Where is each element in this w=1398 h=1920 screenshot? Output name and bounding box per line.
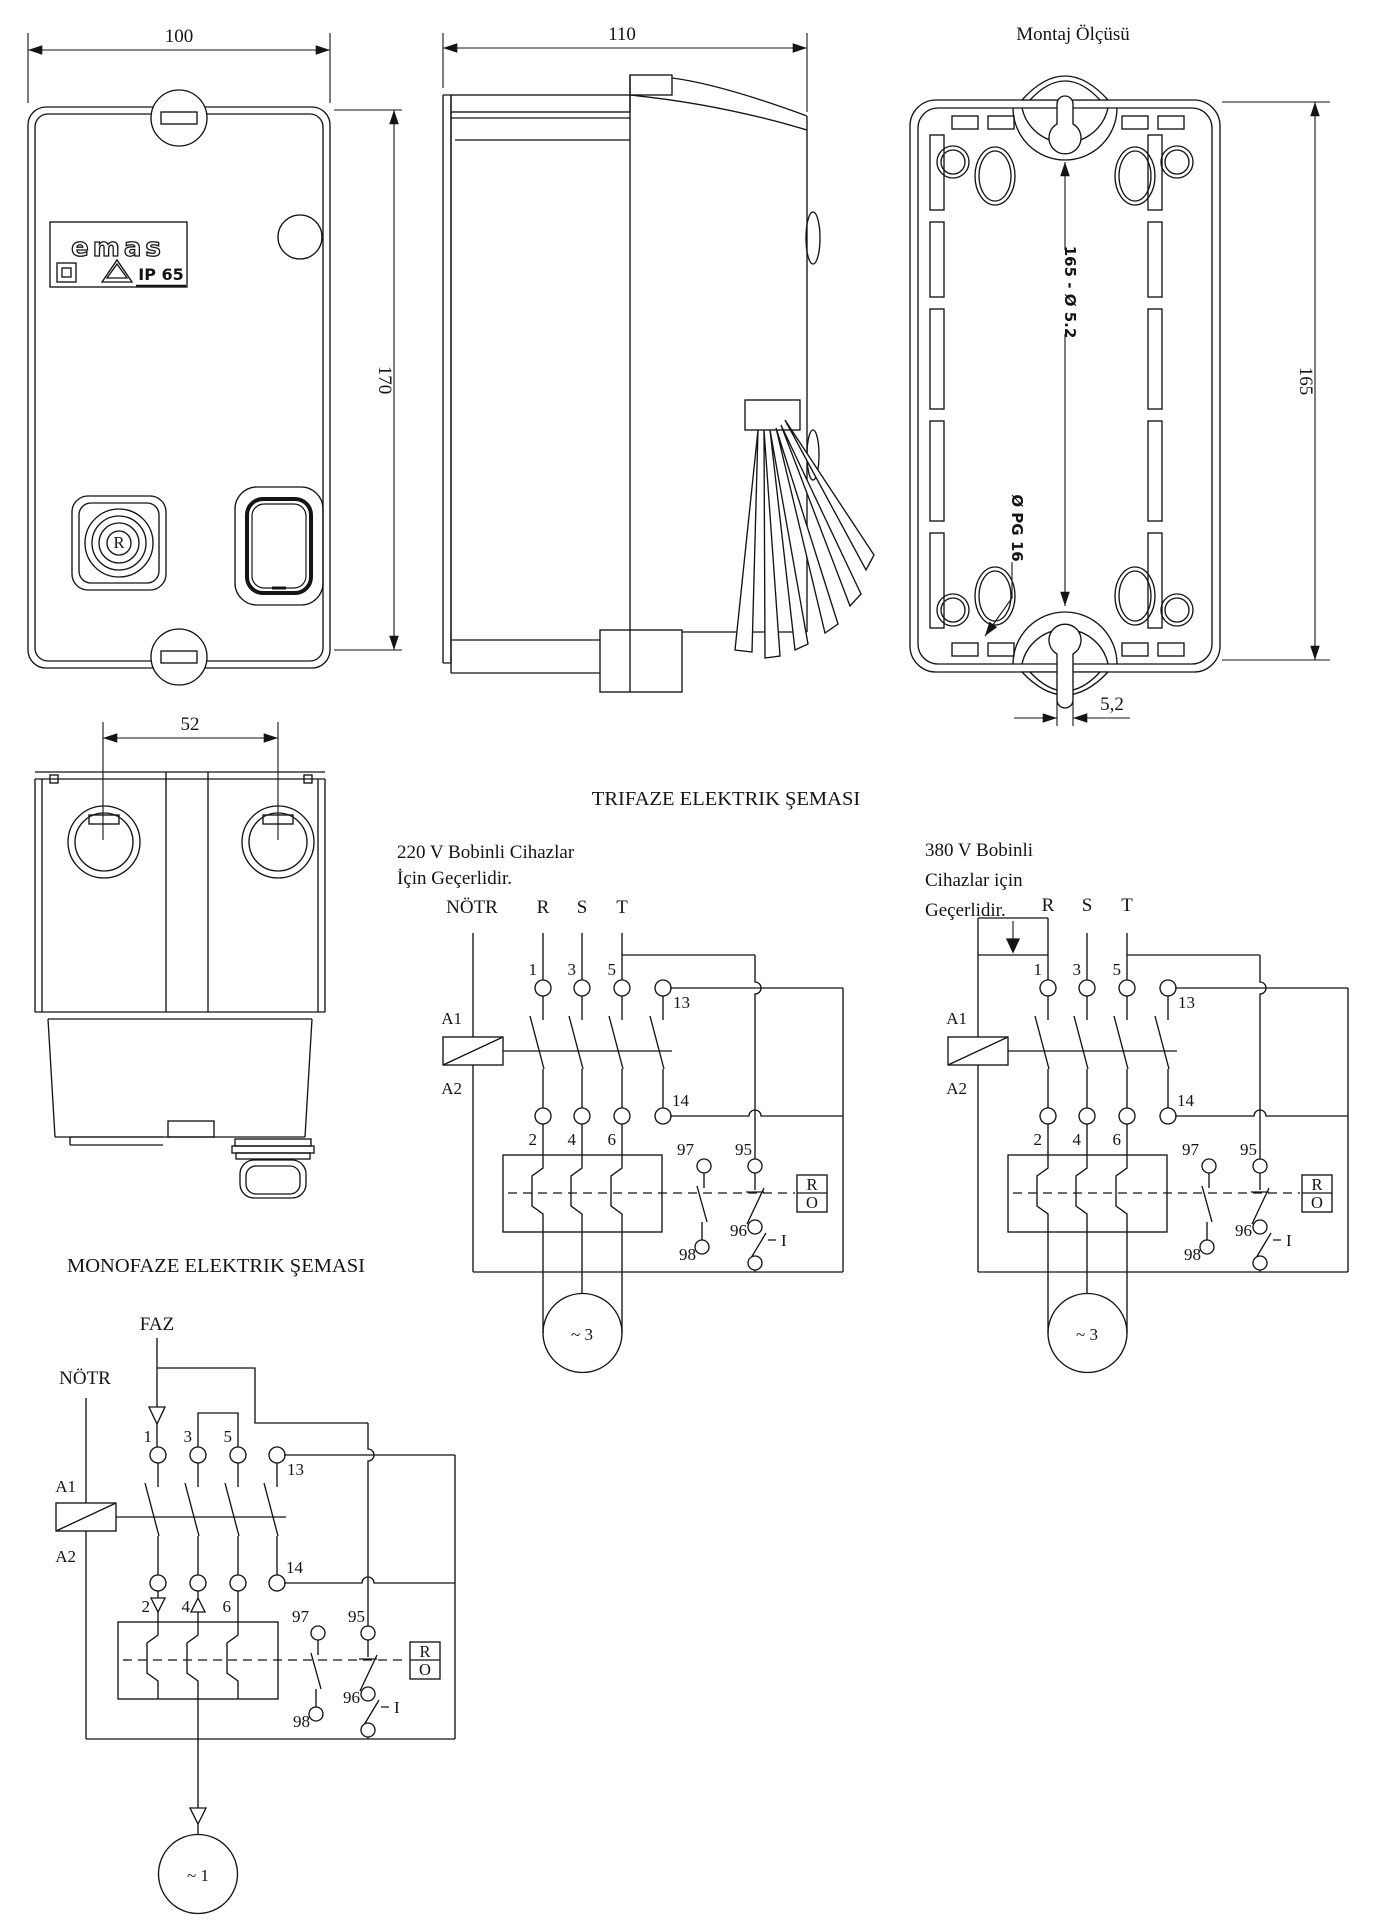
motor-label-220: ~ 3 (571, 1325, 593, 1344)
terminal-95: 95 (1240, 1140, 1257, 1159)
start-stop-button (235, 487, 323, 605)
reset-o-label: O (806, 1193, 818, 1212)
side-view (443, 33, 874, 692)
terminal-a2: A2 (441, 1079, 462, 1098)
faz-label: FAZ (140, 1314, 174, 1335)
schematic-monofaze (56, 1338, 455, 1914)
terminal-6: 6 (1113, 1130, 1122, 1149)
terminal-97: 97 (1182, 1140, 1200, 1159)
mounting-dimensions (985, 102, 1330, 726)
terminal-95: 95 (735, 1140, 752, 1159)
keyhole-top (1013, 76, 1117, 160)
terminal-3: 3 (184, 1427, 193, 1446)
neutral-label-mono: NÖTR (59, 1368, 111, 1389)
phase-t-220: T (616, 897, 628, 918)
note-380-line2: Cihazlar için (925, 870, 1023, 891)
terminal-96: 96 (343, 1688, 360, 1707)
terminal-5: 5 (224, 1427, 233, 1446)
gland-size-label: Ø PG 16 (1008, 494, 1026, 561)
hole-pattern-label: 165 - Ø 5.2 (1061, 246, 1079, 339)
motor-out-arrow-icon (190, 1808, 206, 1824)
note-380-line1: 380 V Bobinli (925, 840, 1033, 861)
terminal-4: 4 (182, 1597, 191, 1616)
schematic-220v (443, 933, 843, 1373)
terminal-3: 3 (568, 960, 577, 979)
terminal-6: 6 (608, 1130, 617, 1149)
terminal-a2: A2 (946, 1079, 967, 1098)
terminal-95: 95 (348, 1607, 365, 1626)
reset-r-label: R (1311, 1175, 1322, 1194)
motor-label-mono: ~ 1 (187, 1866, 209, 1885)
terminal-2: 2 (1034, 1130, 1043, 1149)
terminal-a2: A2 (55, 1547, 76, 1566)
bottom-cable-gland-stack (232, 1139, 314, 1198)
phase-in-arrow-icon (149, 1407, 165, 1424)
terminal-4: 4 (1073, 1130, 1082, 1149)
note-220-line2: İçin Geçerlidir. (397, 868, 512, 889)
mounting-view (910, 76, 1330, 726)
terminal-2: 2 (142, 1597, 151, 1616)
terminal-13: 13 (287, 1460, 304, 1479)
note-220-line1: 220 V Bobinli Cihazlar (397, 842, 575, 863)
monofaze-title: MONOFAZE ELEKTRIK ŞEMASI (67, 1255, 365, 1277)
terminal-a1: A1 (55, 1477, 76, 1496)
terminal-98: 98 (679, 1245, 696, 1264)
reset-o-label: O (419, 1660, 431, 1679)
terminal-5: 5 (608, 960, 617, 979)
terminal-3: 3 (1073, 960, 1082, 979)
terminal-13: 13 (673, 993, 690, 1012)
reset-r-label: R (806, 1175, 817, 1194)
start-contact-label: I (394, 1698, 400, 1717)
terminal-1: 1 (529, 960, 538, 979)
ip-rating-text: IP 65 (138, 265, 184, 284)
front-lid-latch (278, 215, 322, 259)
terminal-98: 98 (293, 1712, 310, 1731)
terminal-96: 96 (1235, 1221, 1252, 1240)
emas-brand-text: emas (71, 233, 165, 263)
bottom-dimensions (103, 722, 278, 840)
phase-s-220: S (577, 897, 588, 918)
motor-label-380: ~ 3 (1076, 1325, 1098, 1344)
slot-width-label: 5,2 (1100, 694, 1124, 715)
bridge-out-arrow-icon (151, 1598, 165, 1612)
terminal-2: 2 (529, 1130, 538, 1149)
front-top-screw-icon (151, 90, 207, 146)
terminal-6: 6 (223, 1597, 232, 1616)
side-latch-profile (806, 212, 820, 264)
drawing-canvas: 100 170 emas IP 65 R 110 Montaj Ölçüsü 1… (0, 0, 1398, 1920)
reset-o-label: O (1311, 1193, 1323, 1212)
neutral-label-220: NÖTR (446, 897, 498, 918)
note-380-line3: Geçerlidir. (925, 900, 1006, 921)
terminal-14: 14 (286, 1558, 304, 1577)
terminal-97: 97 (677, 1140, 695, 1159)
start-contact-label: I (781, 1231, 787, 1250)
bridge-in-arrow-icon (191, 1598, 205, 1612)
front-width-label: 100 (165, 26, 194, 47)
gland-spacing-label: 52 (181, 714, 200, 735)
reset-r-label: R (419, 1642, 430, 1661)
terminal-a1: A1 (441, 1009, 462, 1028)
phase-r-220: R (537, 897, 550, 918)
terminal-a1: A1 (946, 1009, 967, 1028)
terminal-4: 4 (568, 1130, 577, 1149)
schematic-380v (948, 918, 1348, 1373)
mounting-height-label: 165 (1295, 367, 1316, 396)
phase-t-380: T (1121, 895, 1133, 916)
terminal-97: 97 (292, 1607, 310, 1626)
start-contact-label: I (1286, 1231, 1292, 1250)
terminal-5: 5 (1113, 960, 1122, 979)
terminal-96: 96 (730, 1221, 747, 1240)
front-bottom-screw-icon (151, 629, 207, 685)
front-view (28, 33, 402, 685)
trifaze-title: TRIFAZE ELEKTRIK ŞEMASI (592, 788, 861, 810)
phase-s-380: S (1082, 895, 1093, 916)
bottom-view (35, 722, 325, 1198)
terminal-1: 1 (1034, 960, 1043, 979)
terminal-14: 14 (1177, 1091, 1195, 1110)
terminal-1: 1 (144, 1427, 153, 1446)
side-latch-block (630, 75, 672, 95)
terminal-13: 13 (1178, 993, 1195, 1012)
reset-letter: R (113, 533, 124, 552)
mounting-title: Montaj Ölçüsü (1016, 24, 1130, 45)
bottom-gland-left (68, 806, 140, 878)
phase-r-380: R (1042, 895, 1055, 916)
technical-drawing-page: 100 170 emas IP 65 R 110 Montaj Ölçüsü 1… (0, 0, 1398, 1920)
terminal-14: 14 (672, 1091, 690, 1110)
terminal-98: 98 (1184, 1245, 1201, 1264)
front-height-label: 170 (374, 366, 395, 395)
cable-gland-fan-icon (735, 400, 874, 658)
front-dimensions (28, 33, 402, 650)
knockout-slots (930, 116, 1184, 656)
phase-tap-arrow-icon (1007, 939, 1019, 952)
side-depth-label: 110 (608, 24, 636, 45)
